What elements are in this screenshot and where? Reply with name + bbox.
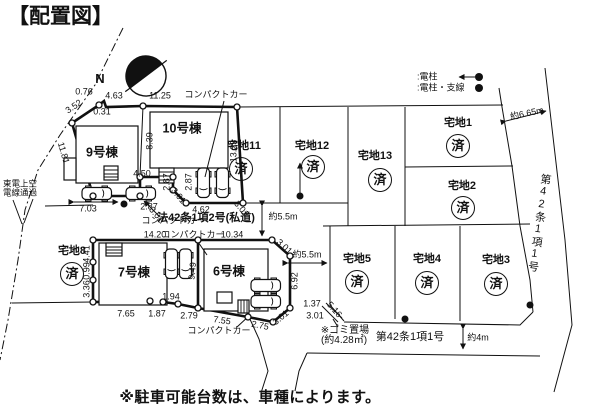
dim-24: 1.87: [148, 309, 166, 318]
compact-car-label-1: コンパクトカー: [184, 90, 247, 99]
lot-13-label: 宅地13: [358, 151, 392, 163]
legend-pole-label: :電柱: [417, 72, 438, 81]
compact-car-label-4: コンパクトカー: [187, 326, 250, 335]
building-6-label: 6号棟: [213, 265, 245, 278]
dim-16: 2.87: [140, 202, 158, 211]
dim-33: 3.01: [306, 311, 324, 320]
site-plan: 【配置図】:電柱:電柱・支線N東電上空電線通過9号棟10号棟7号棟6号棟宅地11…: [0, 0, 600, 414]
car-icon: [196, 168, 211, 198]
dim-21: 3.36: [82, 280, 91, 298]
lot-5-label: 宅地5: [343, 254, 371, 266]
dim-15: 7.03: [79, 204, 97, 213]
width-south-label: 約4m: [467, 333, 489, 342]
dim-2: 0.31: [93, 107, 111, 116]
lot-2-label: 宅地2: [448, 181, 476, 193]
lot-3-status: 済: [484, 272, 508, 296]
car-icon: [82, 186, 112, 201]
dim-7: 13.23: [229, 140, 238, 163]
parking-note: ※駐車可能台数は、車種によります。: [119, 390, 380, 406]
dim-19: 4.41: [82, 245, 91, 263]
building-6-steps: [238, 300, 249, 313]
compact-car-label-3: コンパクトカー: [161, 230, 224, 239]
building-9-label: 9号棟: [86, 146, 118, 159]
lot-13-status: 済: [368, 168, 392, 192]
dim-23: 7.65: [117, 309, 135, 318]
lot-1-status: 済: [446, 134, 470, 158]
overhead-note-line2: 電線通過: [3, 189, 37, 198]
car-icon: [164, 249, 179, 279]
road-south-label: 第42条1項1号: [376, 332, 444, 344]
utility-pole-icon: [402, 316, 409, 323]
dim-22: 9.49: [187, 262, 198, 280]
dim-14: 4.62: [192, 205, 210, 214]
dim-10: 2.87: [184, 173, 193, 191]
dim-26: 2.79: [180, 311, 198, 320]
building-9-steps: [104, 166, 118, 180]
car-icon: [251, 278, 281, 293]
utility-pole-icon: [527, 302, 534, 309]
width-private-h-label: 約5.5m: [292, 250, 321, 259]
utility-pole-icon: [121, 201, 128, 208]
dim-18: 10.34: [221, 230, 244, 239]
building-10-outline: [150, 112, 228, 168]
legend-pole-icon: [475, 73, 483, 81]
lot-12-status: 済: [301, 155, 325, 179]
dim-32: 1.37: [303, 299, 321, 308]
page-title: 【配置図】: [8, 6, 113, 28]
lot-4-label: 宅地4: [413, 254, 441, 266]
car-icon: [251, 294, 281, 309]
lot-3-label: 宅地3: [482, 255, 510, 267]
car-icon: [215, 168, 230, 198]
dim-17: 14.20: [144, 230, 167, 239]
dim-20: 0.99: [82, 262, 91, 280]
lot-5-status: 済: [345, 270, 369, 294]
building-10-label: 10号棟: [163, 122, 202, 135]
legend-pole-guy-icon: [475, 84, 483, 92]
dim-6: 8.39: [145, 132, 154, 150]
legend-pole-guy-label: :電柱・支線: [417, 83, 465, 92]
dim-30: 6.92: [290, 272, 299, 290]
building-7-label: 7号棟: [118, 266, 150, 279]
compass-n-label: N: [95, 72, 104, 86]
lot-12-label: 宅地12: [295, 141, 329, 153]
building-7-porch: [106, 243, 122, 256]
dim-25: 1.94: [162, 292, 180, 301]
dim-8: 4.50: [133, 169, 151, 178]
lot-2-status: 済: [451, 196, 475, 220]
dim-3: 4.63: [105, 91, 123, 100]
dim-4: 11.25: [149, 91, 171, 100]
dim-9: 2.87: [162, 173, 171, 191]
compact-car-label-2: コンパクトカー: [141, 216, 204, 225]
lot-4-status: 済: [415, 271, 439, 295]
width-private-v-label: 約5.5m: [268, 212, 297, 221]
garbage-note-line2: (約4.28㎡): [321, 336, 367, 347]
lot-1-label: 宅地1: [444, 118, 472, 130]
dim-0: 0.76: [75, 87, 93, 96]
building-6-porch: [217, 292, 232, 303]
